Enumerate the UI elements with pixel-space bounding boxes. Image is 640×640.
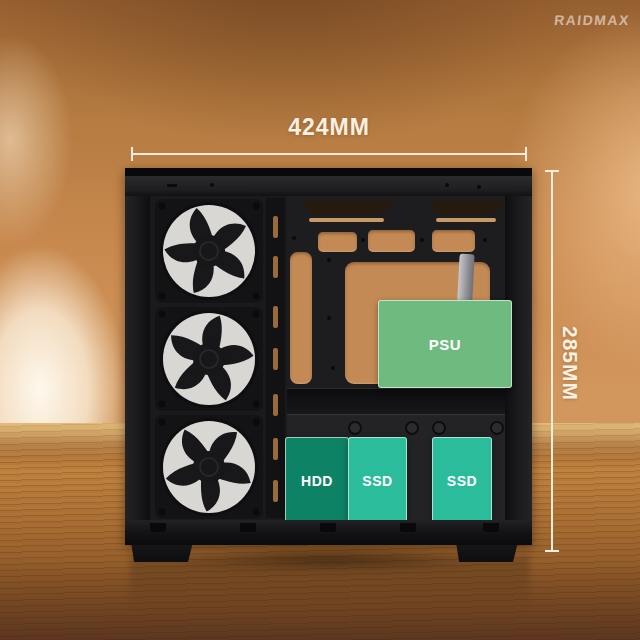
case-top-frame <box>125 176 532 196</box>
bottom-clip <box>150 523 166 532</box>
table-vignette <box>0 560 640 640</box>
fan-bay <box>150 196 287 520</box>
screw-icon <box>327 258 331 262</box>
screw-icon <box>327 316 331 320</box>
hdd-zone: HDD <box>285 437 349 525</box>
width-dimension-label: 424MM <box>131 114 527 141</box>
psu-label: PSU <box>429 336 461 353</box>
fan-bracket-strip <box>266 198 285 518</box>
drive-mount-hole <box>348 421 362 435</box>
screw-icon <box>445 183 449 187</box>
case-left-frame <box>125 196 150 520</box>
ssd-front-zone: SSD <box>348 437 407 525</box>
ssd-front-label: SSD <box>362 473 392 489</box>
bottom-clip <box>240 523 256 532</box>
case-fan-bottom <box>154 414 264 520</box>
case-fan-middle <box>154 306 264 412</box>
hdd-label: HDD <box>301 473 333 489</box>
ssd-rear-zone: SSD <box>432 437 492 525</box>
cable-cutout <box>368 230 415 252</box>
screw-icon <box>292 236 296 240</box>
screw-icon <box>483 238 487 242</box>
vent-slat <box>436 218 496 222</box>
psu-zone: PSU <box>378 300 512 388</box>
case-foot-right <box>456 542 518 562</box>
bottom-clip <box>400 523 416 532</box>
screw-icon <box>361 238 365 242</box>
width-dimension-line <box>131 153 527 155</box>
screw-icon <box>210 183 214 187</box>
brand-logo: RAIDMAX <box>537 12 631 28</box>
cable-cutout <box>432 230 475 252</box>
case-bottom-frame <box>125 520 532 545</box>
bottom-clip <box>483 523 499 532</box>
screw-icon <box>477 185 481 189</box>
top-vent <box>428 200 505 214</box>
drive-mount-hole <box>432 421 446 435</box>
product-photo-scene: RAIDMAX <box>0 0 640 640</box>
screw-icon <box>420 238 424 242</box>
drive-mount-hole <box>405 421 419 435</box>
drive-mount-hole <box>490 421 504 435</box>
case-fan-top <box>154 198 264 304</box>
height-dimension-line <box>551 170 553 552</box>
vent-slat <box>309 218 384 222</box>
top-vent <box>300 200 395 214</box>
cable-channel-cutout <box>290 252 312 384</box>
screw-icon <box>331 366 335 370</box>
cable-cutout <box>318 232 357 252</box>
ssd-rear-label: SSD <box>447 473 477 489</box>
case-foot-left <box>131 542 193 562</box>
psu-shroud-divider <box>287 388 505 415</box>
height-dimension-label: 285MM <box>558 326 582 401</box>
bottom-clip <box>320 523 336 532</box>
vent-slot-icon <box>167 184 177 187</box>
case-top-edge <box>125 168 532 176</box>
